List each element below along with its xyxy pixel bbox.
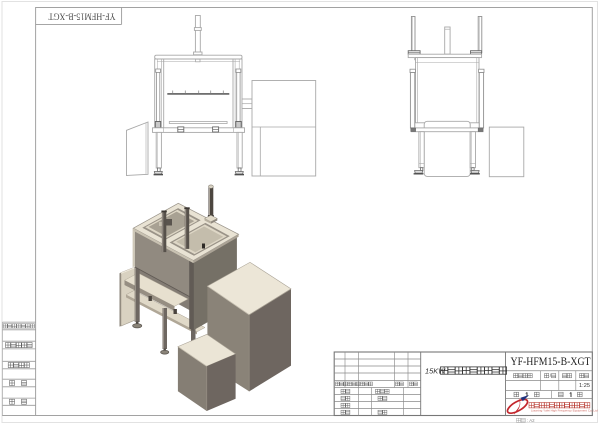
svg-text:YF-HFM15-B-XGT: YF-HFM15-B-XGT <box>48 11 115 22</box>
svg-text:1:25: 1:25 <box>579 383 590 389</box>
svg-text:: A2: : A2 <box>527 418 535 423</box>
svg-text:Liaoning Yufei High Frequency: Liaoning Yufei High Frequency Equipment … <box>531 409 598 413</box>
svg-text:YF-HFM15-B-XGT: YF-HFM15-B-XGT <box>511 356 591 368</box>
